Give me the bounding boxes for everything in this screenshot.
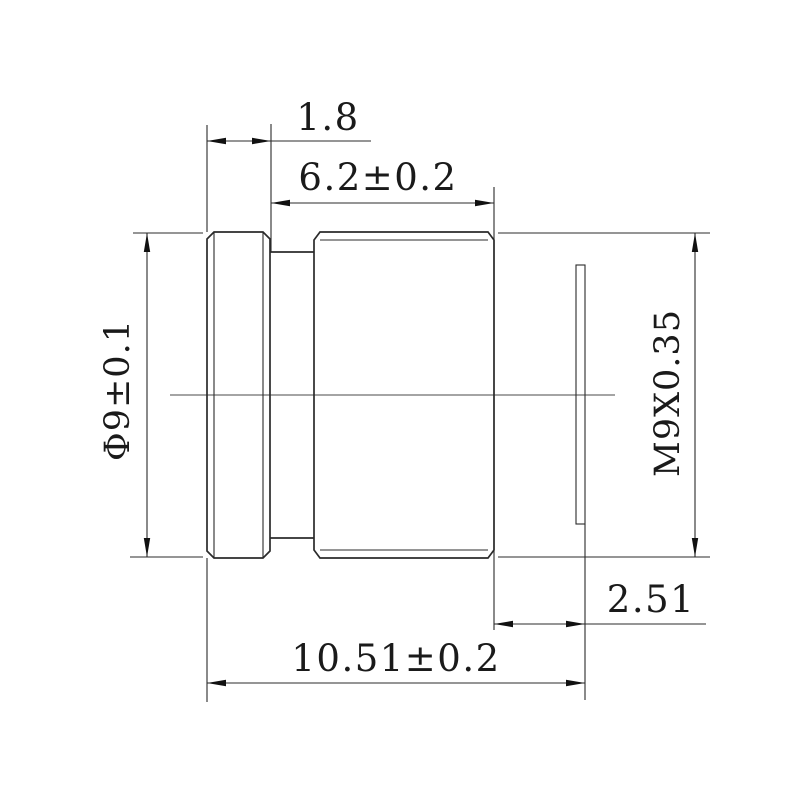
dimension-total-length: 10.51±0.2 (207, 637, 585, 686)
arrowhead-left (494, 621, 513, 627)
dimension-label-total-length: 10.51±0.2 (291, 637, 500, 680)
arrowhead-right (566, 621, 585, 627)
dimension-label-front-rim-width: 1.8 (296, 96, 359, 139)
dimension-label-outer-diameter: Φ9±0.1 (98, 319, 138, 461)
dimension-thread-length: 6.2±0.2 (271, 156, 494, 206)
arrowhead-up (144, 233, 150, 252)
arrowhead-right (566, 680, 585, 686)
arrowhead-down (144, 538, 150, 557)
technical-drawing-page: 1.8 6.2±0.2 Φ9±0.1 M9X0.35 2.51 10.51±0.… (0, 0, 800, 800)
dimension-label-thread-length: 6.2±0.2 (298, 156, 457, 199)
lens-barrel-drawing: 1.8 6.2±0.2 Φ9±0.1 M9X0.35 2.51 10.51±0.… (0, 0, 800, 800)
arrowhead-up (692, 233, 698, 252)
dimension-label-rear-protrusion: 2.51 (607, 578, 695, 621)
dimension-outer-diameter: Φ9±0.1 (98, 233, 150, 557)
arrowhead-left (207, 138, 226, 144)
dimension-rear-protrusion: 2.51 (494, 578, 706, 627)
arrowhead-left (207, 680, 226, 686)
arrowhead-right (252, 138, 271, 144)
dimension-thread-spec: M9X0.35 (648, 233, 698, 557)
arrowhead-down (692, 538, 698, 557)
dimension-front-rim-width: 1.8 (207, 96, 371, 144)
arrowhead-right (475, 200, 494, 206)
arrowhead-left (271, 200, 290, 206)
dimension-label-thread-spec: M9X0.35 (648, 309, 688, 477)
